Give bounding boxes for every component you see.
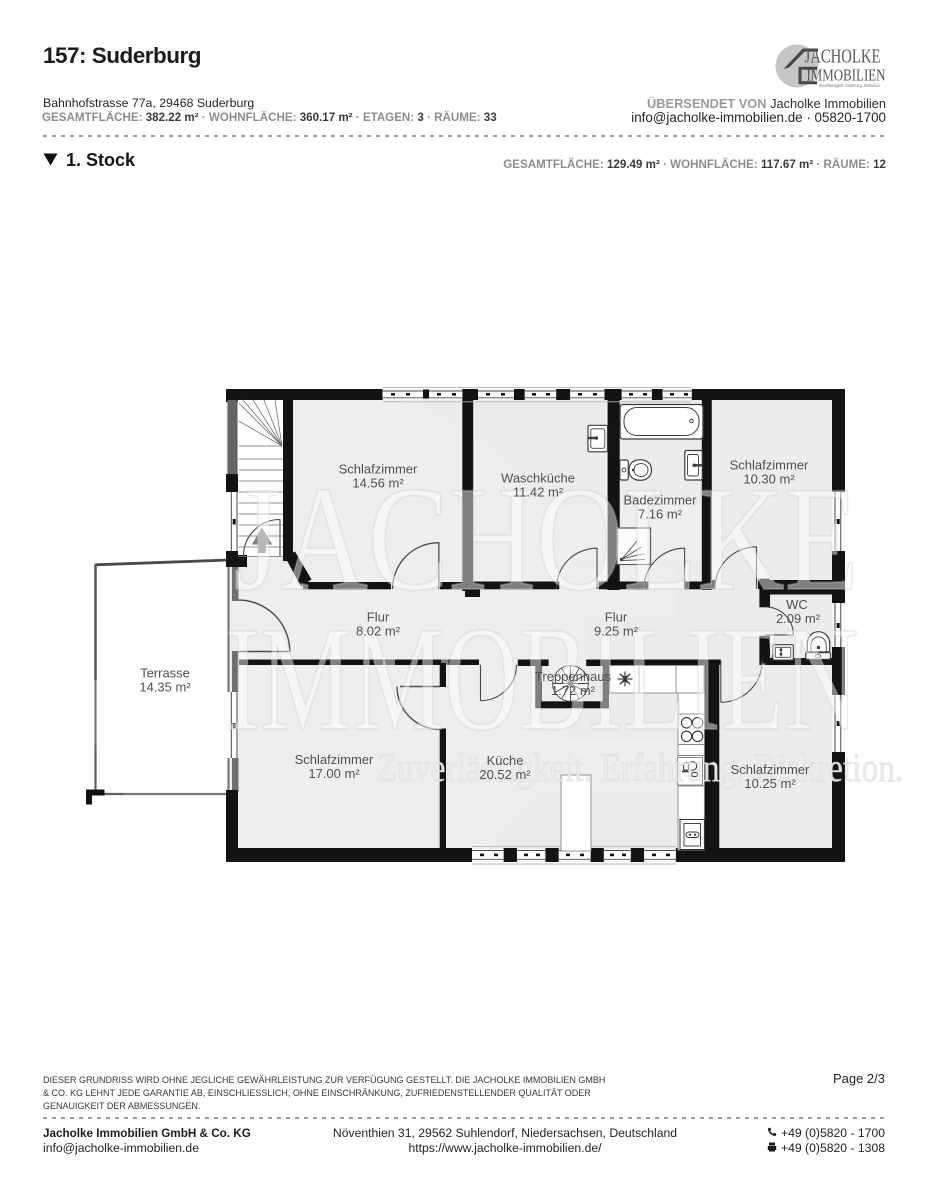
svg-text:10.30 m²: 10.30 m² — [743, 472, 795, 487]
svg-text:Treppenhaus: Treppenhaus — [535, 669, 612, 684]
svg-text:Flur: Flur — [367, 610, 390, 625]
svg-text:Waschküche: Waschküche — [501, 471, 575, 486]
svg-text:Küche: Küche — [487, 753, 524, 768]
svg-text:1.72 m²: 1.72 m² — [551, 683, 596, 698]
svg-text:Schlafzimmer: Schlafzimmer — [730, 458, 809, 473]
svg-text:17.00 m²: 17.00 m² — [308, 766, 360, 781]
svg-text:Schlafzimmer: Schlafzimmer — [731, 762, 810, 777]
svg-text:7.16 m²: 7.16 m² — [638, 507, 683, 522]
svg-text:11.42 m²: 11.42 m² — [513, 485, 564, 500]
svg-text:Terrasse: Terrasse — [140, 666, 190, 681]
svg-text:9.25 m²: 9.25 m² — [594, 624, 639, 639]
svg-text:14.35 m²: 14.35 m² — [139, 680, 191, 695]
svg-text:8.02 m²: 8.02 m² — [356, 624, 401, 639]
svg-text:WC: WC — [786, 597, 808, 612]
svg-text:14.56 m²: 14.56 m² — [352, 476, 404, 491]
svg-text:20.52 m²: 20.52 m² — [479, 767, 531, 782]
svg-text:Schlafzimmer: Schlafzimmer — [339, 462, 418, 477]
svg-text:Zuverlässigkeit. Erfahrung. Di: Zuverlässigkeit. Erfahrung. Diskretion. — [377, 745, 904, 790]
svg-text:Schlafzimmer: Schlafzimmer — [295, 752, 374, 767]
svg-text:2.09 m²: 2.09 m² — [776, 611, 821, 626]
svg-text:10.25 m²: 10.25 m² — [744, 776, 796, 791]
svg-text:Flur: Flur — [605, 610, 628, 625]
svg-text:Badezimmer: Badezimmer — [624, 493, 698, 508]
